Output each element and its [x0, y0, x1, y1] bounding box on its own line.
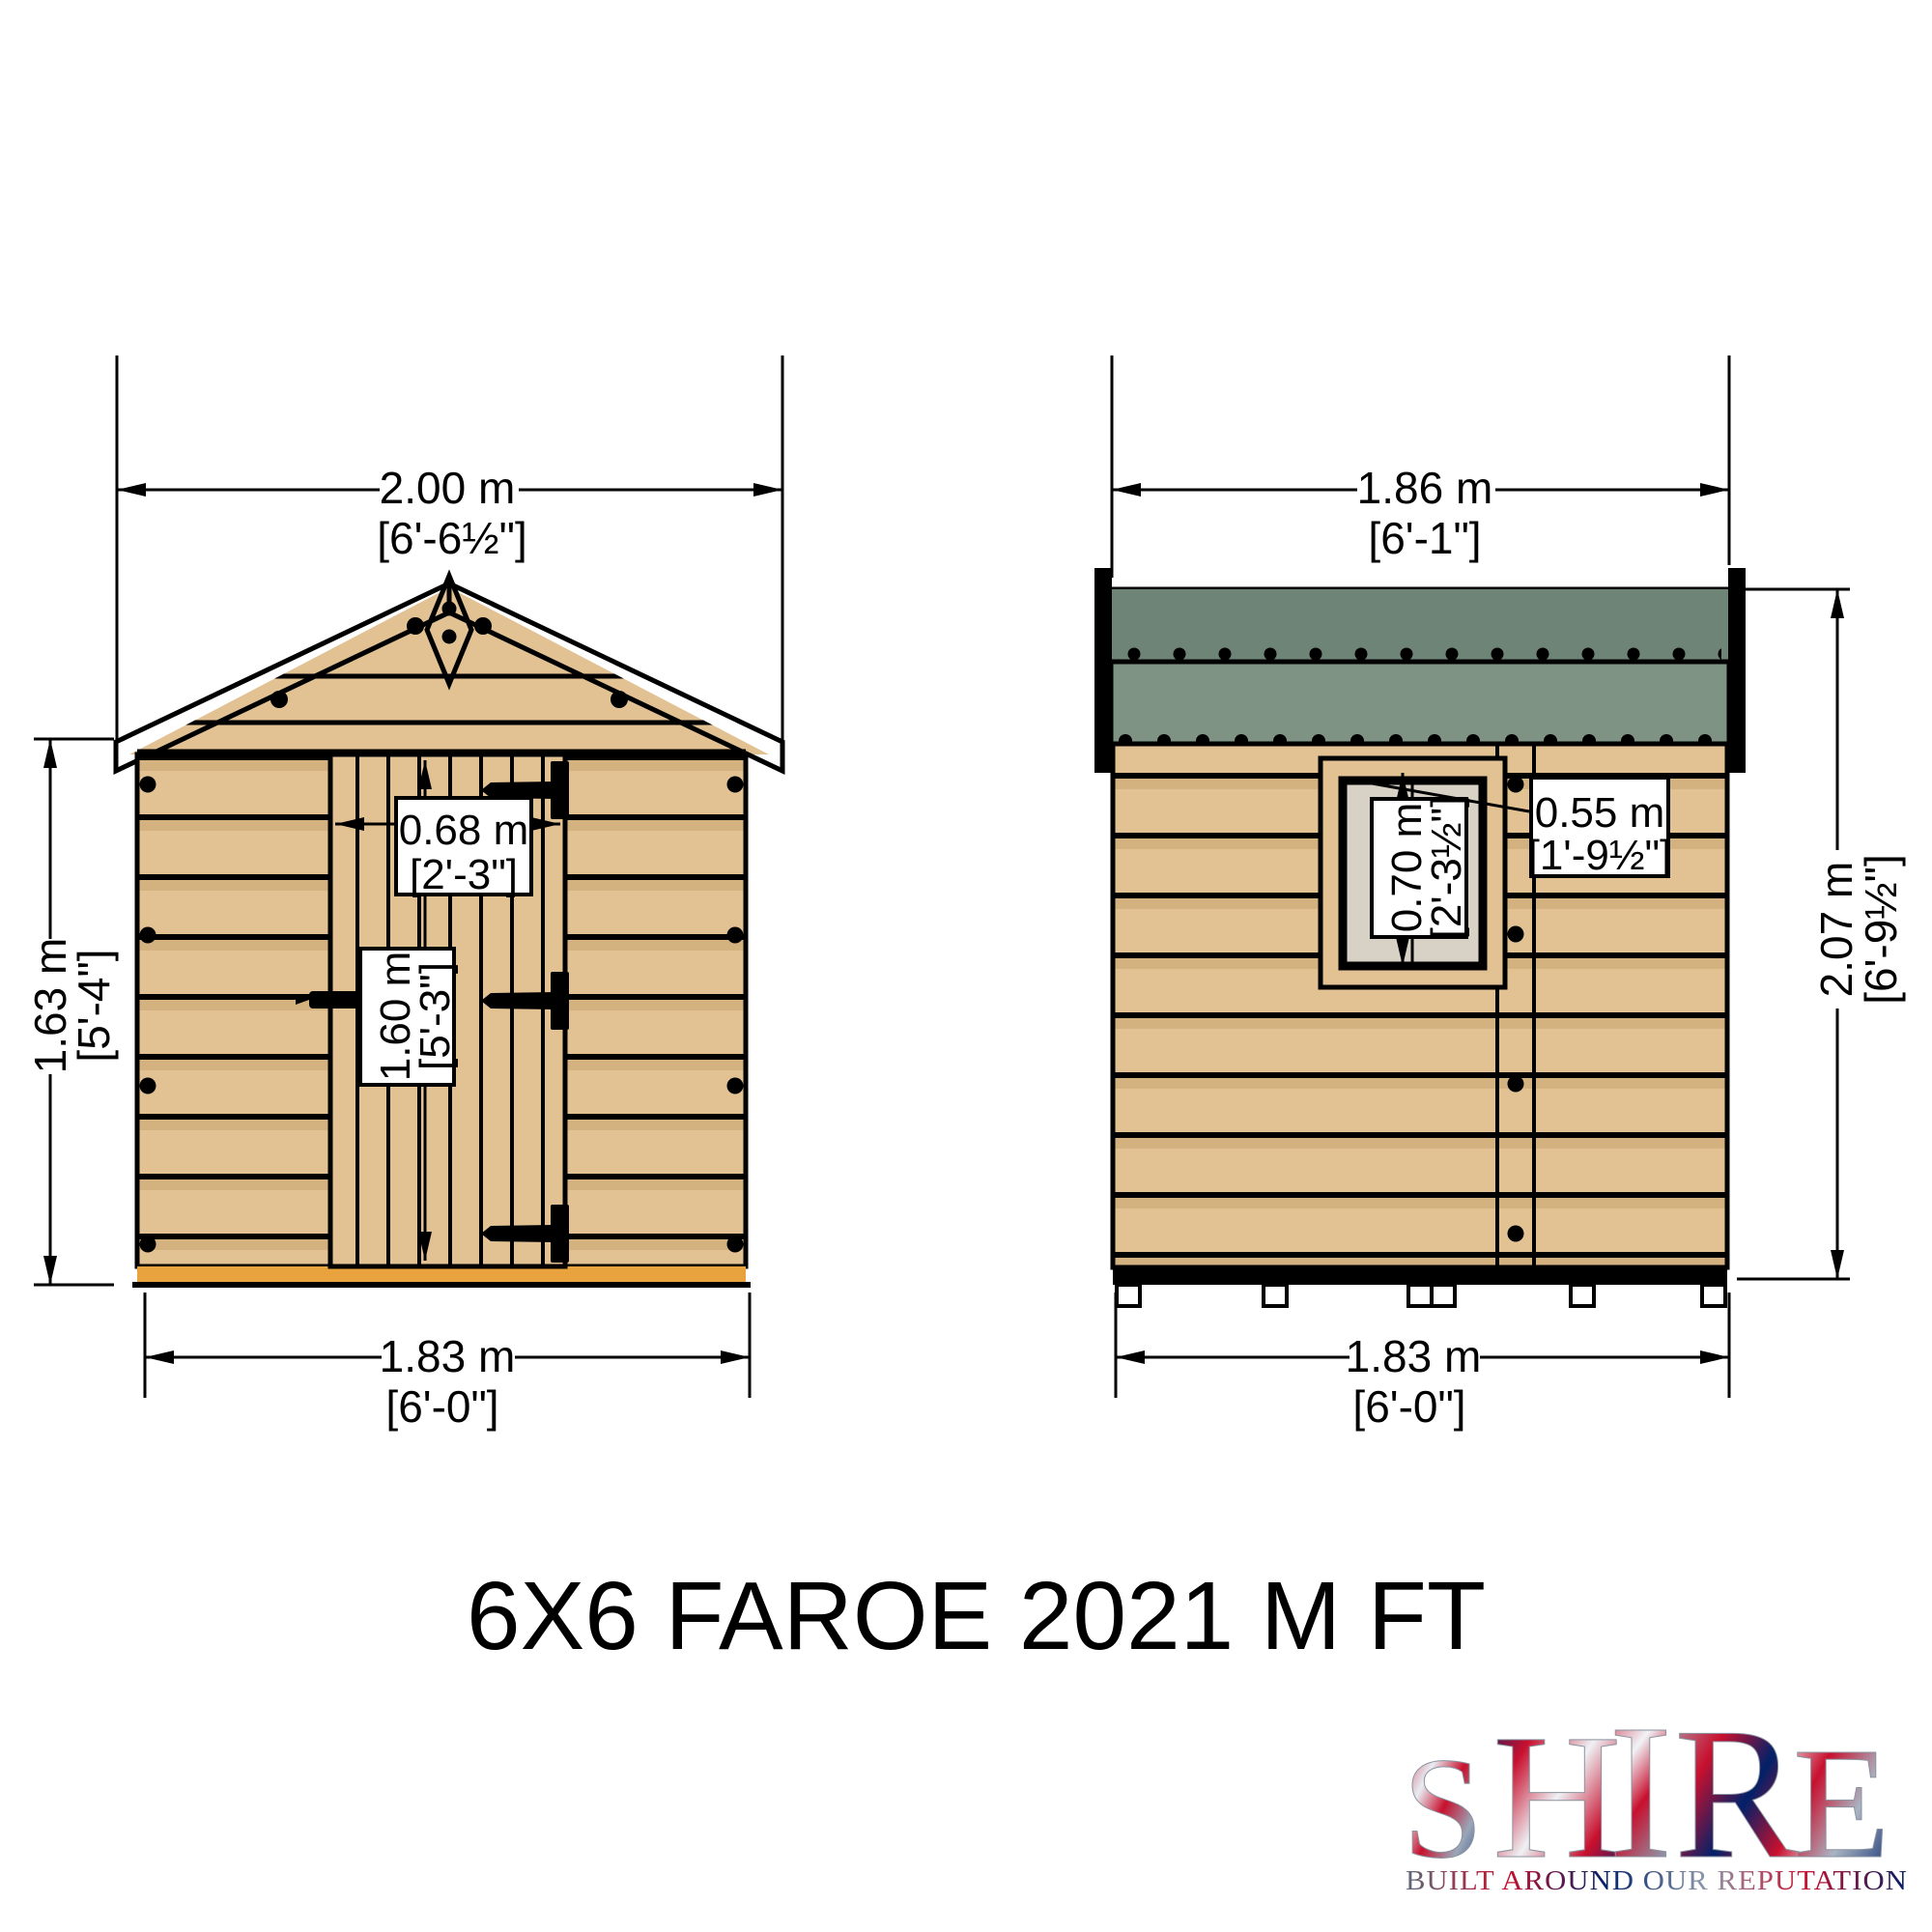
- base-plate: [1113, 1267, 1727, 1285]
- window-width-metric: 0.55 m: [1535, 789, 1665, 837]
- side-total-height-imperial: [6'-9½"]: [1856, 854, 1906, 1005]
- floor-bearer: [1264, 1285, 1287, 1306]
- window-height-dimension: 0.70 m [2'-3½"]: [1372, 796, 1470, 940]
- side-total-height-dimension: 2.07 m [6'-9½"]: [1737, 589, 1906, 1279]
- front-base-width-metric: 1.83 m: [380, 1331, 516, 1381]
- window-height-imperial: [2'-3½"]: [1423, 796, 1470, 940]
- front-roof-width-metric: 2.00 m: [380, 463, 516, 513]
- front-roof-width-imperial: [6'-6½"]: [377, 513, 527, 563]
- front-wall-height-dimension: 1.63 m [5'-4"]: [25, 739, 119, 1285]
- logo-letter-e: E: [1793, 1715, 1890, 1891]
- floor-bearer: [1408, 1285, 1432, 1306]
- shire-logo: S H I R E BUILT AROUND OUR REPUTATION: [1403, 1686, 1908, 1899]
- side-top-width-imperial: [6'-1"]: [1368, 513, 1481, 563]
- floor-bearer: [1702, 1285, 1725, 1306]
- side-base-width-metric: 1.83 m: [1346, 1331, 1482, 1381]
- roof-end-board-right: [1728, 568, 1746, 773]
- drawing-canvas: 2.00 m [6'-6½"]: [0, 0, 1932, 1932]
- floor-bearer: [1117, 1285, 1140, 1306]
- logo-letter-s: S: [1403, 1728, 1483, 1889]
- front-gable: [116, 576, 782, 771]
- floor-bearer: [1432, 1285, 1455, 1306]
- front-wall-height-imperial: [5'-4"]: [69, 949, 119, 1062]
- window-width-imperial: [1'-9½"]: [1528, 832, 1672, 879]
- side-top-width-dimension: 1.86 m [6'-1"]: [1112, 355, 1729, 578]
- logo-tagline: BUILT AROUND OUR REPUTATION: [1406, 1866, 1908, 1896]
- door-width-metric: 0.68 m: [399, 807, 529, 854]
- side-total-height-metric: 2.07 m: [1811, 862, 1861, 998]
- front-base-width-imperial: [6'-0"]: [385, 1381, 498, 1432]
- window-width-dimension: 0.55 m [1'-9½"]: [1528, 778, 1672, 879]
- door-height-dimension: 1.60 m [5'-3"]: [360, 949, 459, 1085]
- side-base-width-imperial: [6'-0"]: [1352, 1381, 1465, 1432]
- shed-technical-drawing: 2.00 m [6'-6½"]: [0, 0, 1932, 1932]
- front-base-width-dimension: 1.83 m [6'-0"]: [145, 1293, 750, 1432]
- door-width-imperial: [2'-3"]: [410, 851, 518, 898]
- side-base-width-dimension: 1.83 m [6'-0"]: [1116, 1293, 1729, 1432]
- front-view: 2.00 m [6'-6½"]: [25, 355, 782, 1432]
- floor-bearer: [1571, 1285, 1594, 1306]
- door-height-imperial: [5'-3"]: [412, 962, 459, 1070]
- side-top-width-metric: 1.86 m: [1357, 463, 1493, 513]
- side-view: 1.86 m [6'-1"]: [1094, 355, 1906, 1432]
- roof-end-board-left: [1094, 568, 1112, 773]
- drawing-title: 6X6 FAROE 2021 M FT: [467, 1562, 1486, 1670]
